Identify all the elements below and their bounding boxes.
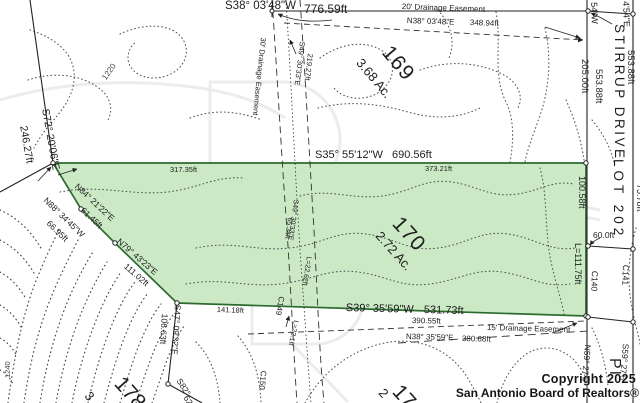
arc-111: L=111.75ft	[573, 243, 582, 284]
lot-202-label: LOT 202	[612, 159, 626, 239]
contour-1240: 1240	[4, 361, 12, 378]
dist-141: 141.18ft	[217, 306, 244, 314]
dist-10663: 106.63ft	[158, 313, 169, 344]
dist-205: 205.00ft	[580, 59, 590, 93]
bearing-partial-54w: 54"W	[589, 2, 599, 24]
plat-map: S38° 03'48"W776.59ft20' Drainage Easemen…	[0, 0, 640, 403]
dist-75: 75.78ft	[635, 184, 640, 212]
dist-100: 100.58ft	[577, 176, 586, 209]
bearing-n38-bottom: N38° 35'59"E	[406, 333, 454, 342]
parcel-170-shape	[53, 163, 586, 316]
dist-553-a: 553.88ft	[594, 69, 604, 103]
dist-373: 373.21ft	[425, 165, 452, 173]
copyright-line1: Copyright 2025	[541, 372, 636, 386]
dist-317: 317.35ft	[170, 166, 197, 174]
bearing-n38-top: N38° 03'48"E	[407, 17, 455, 27]
dist-380: 380.68ft	[462, 335, 491, 344]
bearing-top-s38: S38° 03'48"W	[225, 1, 296, 13]
dist-531: 531.73ft	[424, 305, 464, 317]
dist-776: 776.59ft	[304, 3, 347, 15]
street-name: STIRRUP DRIVE	[613, 24, 627, 161]
bearing-s35: S35° 55'12"W	[315, 150, 383, 161]
bearing-s39: S39° 35'59"W	[346, 303, 414, 316]
copyright-line2: San Antonio Board of Realtors®	[456, 386, 639, 400]
lot-202-line	[588, 246, 633, 249]
dist-390: 390.55ft	[412, 317, 441, 326]
curve-c141: C141	[621, 265, 630, 286]
dist-690: 690.56ft	[392, 150, 432, 161]
curve-c150: C150	[257, 370, 267, 390]
dist-348: 348.94ft	[470, 19, 499, 28]
curve-c140: C140	[590, 271, 599, 292]
